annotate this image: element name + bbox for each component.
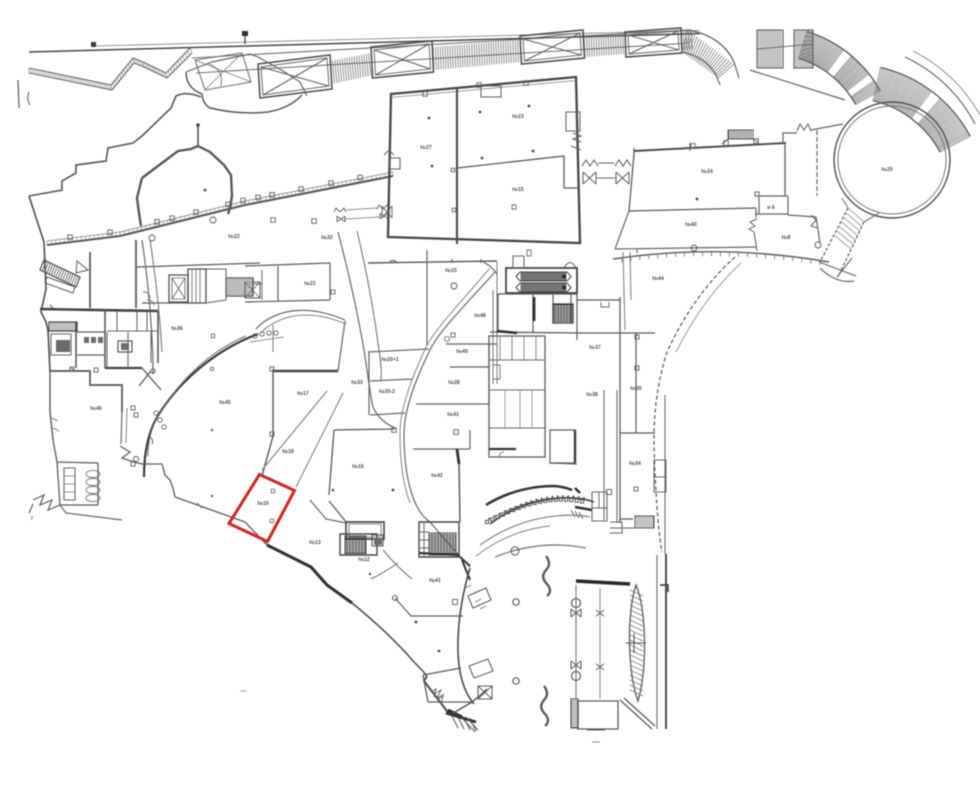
svg-text:№20+1: №20+1: [381, 357, 399, 363]
svg-text:№23: №23: [512, 114, 524, 120]
svg-text:№40: №40: [685, 222, 697, 228]
svg-text:№22: №22: [228, 234, 240, 240]
svg-text:№15: №15: [512, 187, 524, 193]
svg-text:№42: №42: [431, 473, 443, 479]
svg-text:№13: №13: [309, 540, 321, 546]
svg-text:№8: №8: [782, 235, 791, 241]
svg-text:№45: №45: [219, 400, 231, 406]
svg-text:№41: №41: [429, 578, 441, 584]
svg-text:№16: №16: [352, 464, 364, 470]
svg-text:№17: №17: [297, 391, 309, 397]
svg-text:№43: №43: [447, 412, 459, 418]
svg-text:№34: №34: [629, 461, 641, 467]
svg-text:№49: №49: [456, 349, 468, 355]
svg-text:№37: №37: [589, 345, 601, 351]
svg-text:№25: №25: [881, 167, 893, 173]
svg-text:№10: №10: [257, 501, 269, 507]
svg-text:№38: №38: [586, 392, 598, 398]
svg-text:№21: №21: [304, 281, 316, 287]
svg-text:№24: №24: [701, 169, 713, 175]
svg-text:№15: №15: [445, 268, 457, 274]
svg-text:№46: №46: [90, 406, 102, 412]
svg-text:№20-2: №20-2: [379, 389, 395, 395]
svg-text:№33: №33: [351, 380, 363, 386]
svg-text:№32: №32: [321, 235, 333, 241]
svg-text:№48: №48: [474, 313, 486, 319]
svg-text:№27: №27: [420, 145, 432, 151]
svg-text:и 6: и 6: [767, 205, 775, 211]
svg-text:№35: №35: [630, 386, 642, 392]
svg-text:№12: №12: [358, 557, 370, 563]
svg-text:№44: №44: [652, 276, 664, 282]
svg-text:№28: №28: [448, 380, 460, 386]
svg-text:№18: №18: [282, 449, 294, 455]
svg-text:№36: №36: [171, 326, 183, 332]
